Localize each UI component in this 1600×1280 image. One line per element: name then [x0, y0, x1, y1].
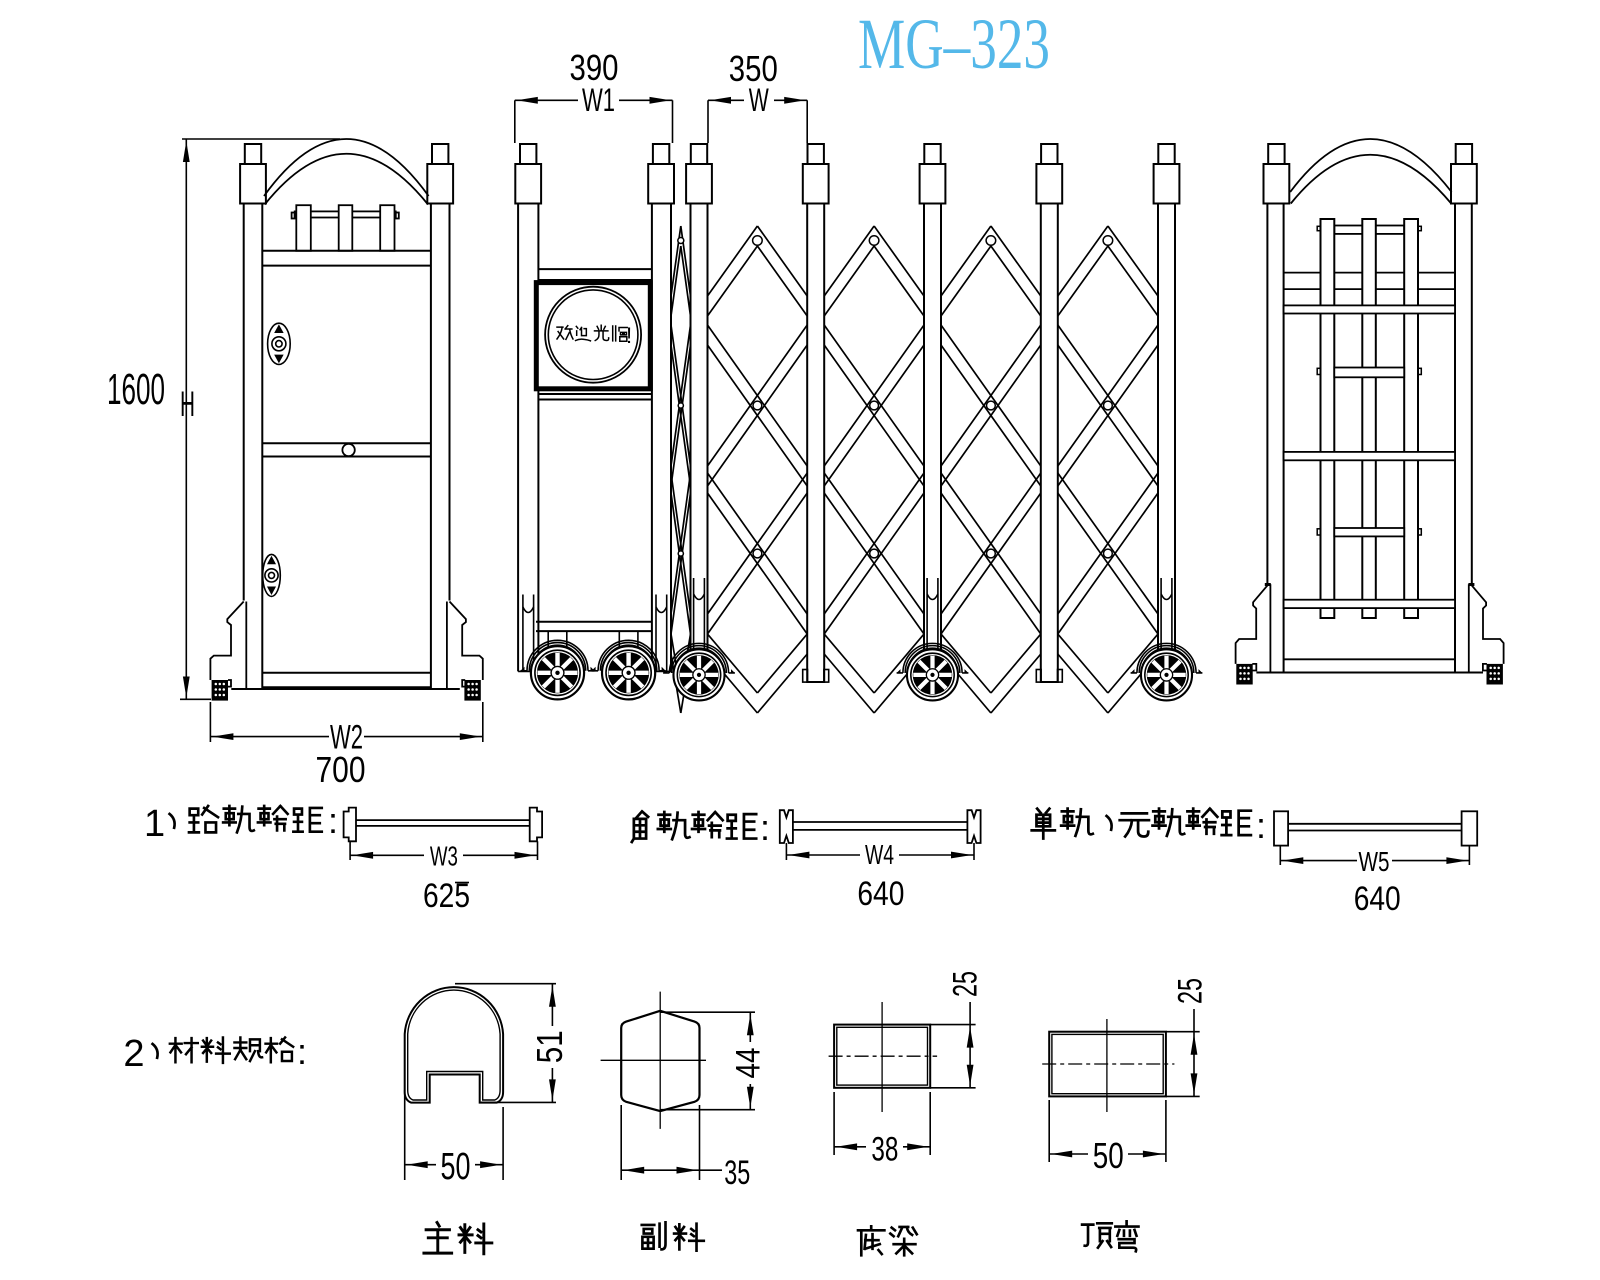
svg-text:H: H [180, 385, 195, 424]
svg-text:W5: W5 [1359, 846, 1390, 877]
svg-text:W: W [749, 82, 770, 118]
svg-text:700: 700 [316, 749, 366, 790]
svg-text::: : [328, 800, 338, 841]
svg-text:!: ! [626, 323, 632, 348]
svg-text:35: 35 [724, 1154, 750, 1192]
svg-text:38: 38 [871, 1131, 898, 1169]
svg-text:W4: W4 [865, 839, 894, 870]
svg-text:640: 640 [857, 875, 904, 913]
svg-text:MG–323: MG–323 [858, 4, 1050, 84]
svg-text:50: 50 [441, 1146, 471, 1188]
svg-text:50: 50 [1093, 1135, 1124, 1176]
svg-text:44: 44 [729, 1048, 767, 1079]
svg-text:51: 51 [529, 1030, 570, 1063]
svg-text:W1: W1 [582, 82, 615, 118]
svg-text:640: 640 [1354, 880, 1401, 918]
svg-text:25: 25 [946, 971, 984, 997]
svg-text:25: 25 [1172, 978, 1210, 1004]
svg-text:1600: 1600 [107, 365, 165, 414]
svg-text::: : [760, 807, 770, 848]
svg-text::: : [1256, 805, 1266, 846]
svg-text::: : [297, 1031, 307, 1072]
svg-text:W3: W3 [430, 840, 458, 871]
svg-text:1: 1 [144, 803, 165, 845]
svg-text:2: 2 [123, 1033, 144, 1075]
